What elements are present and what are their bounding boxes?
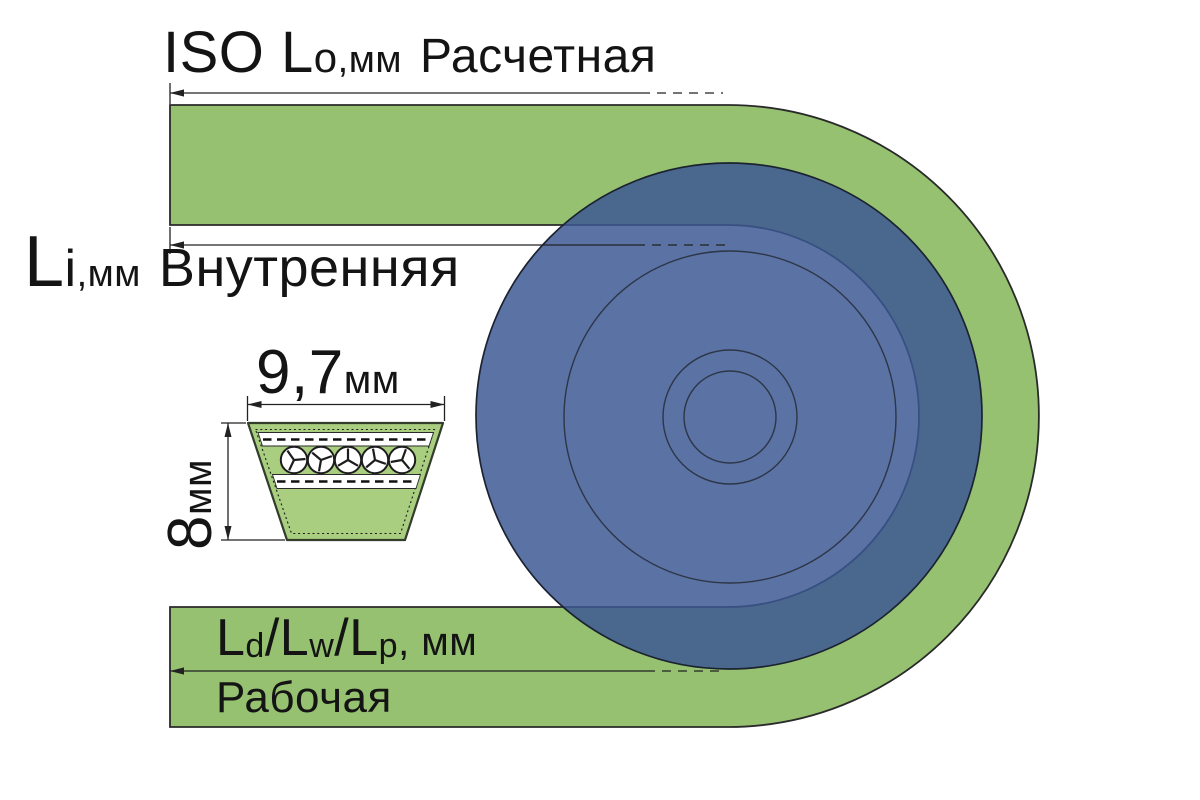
datum-slash-2: / (334, 612, 349, 664)
outer-length-name: Расчетная (420, 33, 656, 81)
working-length-name: Рабочая (216, 676, 392, 720)
datum-units: , мм (398, 622, 477, 662)
section-width-units: мм (344, 360, 400, 400)
belt-cross-section (248, 423, 443, 540)
datum-symbol-2: L (280, 612, 309, 664)
datum-symbol-1: L (216, 612, 245, 664)
dim-outer-length (170, 83, 723, 104)
outer-length-units: ,мм (338, 41, 402, 79)
pulley-disc (476, 163, 982, 669)
section-width-label: 9,7 мм (256, 342, 400, 404)
datum-subscript-1: d (245, 629, 264, 663)
working-length-text: Рабочая (216, 676, 392, 720)
outer-length-subscript: o (314, 37, 338, 79)
section-height-units: мм (178, 459, 218, 515)
diagram-drawing (0, 0, 1200, 800)
inner-length-symbol: L (24, 226, 65, 298)
inner-length-name: Внутренняя (159, 241, 460, 295)
section-height-label: 8 мм (160, 459, 222, 550)
datum-symbol-3: L (349, 612, 378, 664)
vbelt-length-diagram: ISO L o ,мм Расчетная L i ,мм Внутренняя… (0, 0, 1200, 800)
inner-length-subscript: i (65, 243, 77, 295)
outer-length-symbol: ISO L (163, 24, 314, 82)
datum-subscript-3: p (379, 629, 398, 663)
inner-length-units: ,мм (77, 255, 141, 293)
outer-length-label: ISO L o ,мм Расчетная (163, 24, 656, 82)
datum-subscript-2: w (309, 629, 334, 663)
section-width-value: 9,7 (256, 342, 344, 404)
datum-length-label: L d / L w / L p , мм (216, 612, 477, 664)
section-height-value: 8 (160, 515, 222, 550)
inner-length-label: L i ,мм Внутренняя (24, 226, 460, 298)
datum-slash-1: / (265, 612, 280, 664)
